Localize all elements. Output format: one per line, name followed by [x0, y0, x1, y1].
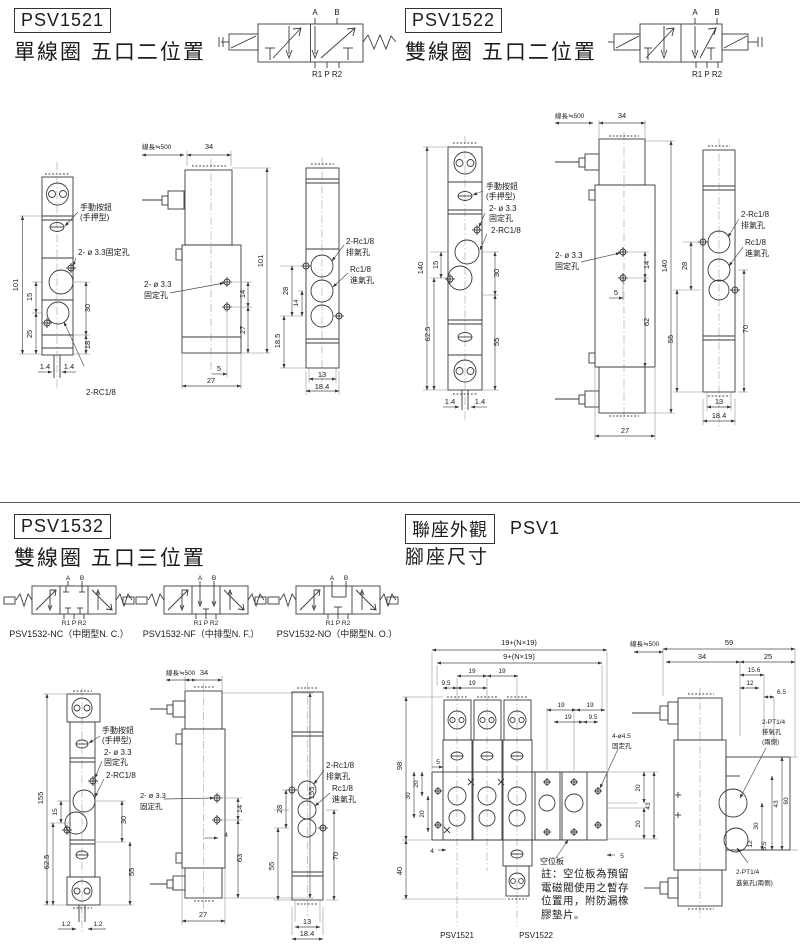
ports-bottom-label: R1 P R2: [194, 620, 219, 627]
pilot-actuator-right-icon: [722, 34, 762, 50]
exhaust-port-label: 2-Rc1/8: [326, 761, 355, 770]
valve-datasheet-page: PSV1521 單線圈 五口二位置 PSV1522 雙線圈 五口二位置 A B …: [0, 0, 800, 949]
psv1532-no-symbol: A B R1 P R2: [268, 576, 398, 626]
port-b-label: B: [212, 575, 216, 582]
dim-34: 34: [698, 652, 706, 661]
psv1521-back-view: 28 14 18.5 13 18.4 2-Rc1/8 排氣孔 Rc1/8 進氣孔: [276, 151, 402, 401]
dim-9-5: 9.5: [588, 714, 597, 721]
dim-14: 14: [293, 299, 300, 307]
dim-20: 20: [419, 810, 426, 818]
dim-19: 19: [557, 702, 565, 709]
dim-62-5: 62.5: [42, 855, 51, 870]
dim-1-4-right: 1.4: [64, 362, 74, 371]
dim-14: 14: [642, 261, 651, 269]
manual-button-label: 手動按鈕: [102, 725, 134, 735]
dim-43: 43: [773, 800, 780, 808]
dim-140: 140: [660, 260, 669, 273]
port-a-label: A: [66, 575, 71, 582]
dim-60: 60: [783, 797, 790, 805]
dim-1-4-right: 1.4: [475, 397, 485, 406]
dim-101: 101: [11, 279, 20, 292]
dim-12b: 12: [747, 840, 754, 848]
dim-1-2-right: 1.2: [93, 921, 102, 928]
exhaust-port-label: 2-Rc1/8: [346, 237, 375, 246]
dim-27-bottom: 27: [207, 376, 215, 385]
dim-40: 40: [395, 867, 404, 875]
ports-bottom-label: R1 P R2: [62, 620, 87, 627]
psv1532-nf-caption: PSV1532-NF（中排型N. F.）: [132, 627, 270, 640]
centerlines: [457, 693, 517, 926]
dim-28: 28: [680, 262, 689, 270]
dim-1-4-left: 1.4: [40, 362, 50, 371]
exhaust-port-label3: (兩側): [762, 738, 779, 746]
valve-symbol-body: [640, 18, 722, 68]
valve-unit-1: [443, 697, 472, 840]
dim-101: 101: [256, 255, 265, 268]
dim-25: 25: [764, 652, 772, 661]
valve-body: [555, 136, 655, 416]
extension-lines: [663, 649, 798, 850]
dim-13: 13: [303, 917, 311, 926]
valve1-model-label: PSV1521: [440, 931, 474, 940]
manifold-subtitle: 腳座尺寸: [405, 542, 489, 569]
dim-15: 15: [52, 808, 59, 816]
dim-63: 63: [235, 854, 244, 862]
exhaust-port-label: 2-PT1/4: [762, 719, 786, 726]
psv1522-model-box: PSV1522: [405, 8, 502, 33]
dim-4: 4: [430, 848, 434, 855]
dim-8-5: 8.5: [761, 841, 768, 850]
psv1532-back-view: 28 55 70 13 18.4 2-Rc1/8 排氣孔 Rc1/8 進氣孔: [268, 676, 400, 949]
psv1522-front-view: 140 15 62.5 30 55 1.4 1.4 手動按鈕 (手押型) 2- …: [413, 110, 533, 455]
psv1522-side-view: 線長≒500 34 140 14 5 62 27 2- ø 3.3 固定孔: [553, 106, 685, 454]
exhaust-port-label2: 排氣孔: [741, 220, 765, 230]
psv1532-nf-symbol: A B R1 P R2: [136, 576, 266, 626]
psv1532-no-caption: PSV1532-NO（中開型N. O.）: [264, 627, 410, 640]
wire-length-label: 線長≒500: [166, 668, 196, 677]
ports-bottom-label: R1 P R2: [312, 70, 343, 79]
valve-body: [292, 688, 323, 904]
exhaust-port-label2: 排氣孔: [326, 771, 350, 781]
dim-18-4: 18.4: [712, 411, 727, 420]
manifold-model: PSV1: [510, 518, 560, 539]
base-fixing-label: 4-ø4.5: [612, 733, 631, 740]
valve-unit-3: [503, 697, 532, 899]
psv1532-nc-caption: PSV1532-NC（中閉型N. C.）: [0, 627, 138, 640]
dim-15: 15: [431, 261, 440, 269]
dim-18-4: 18.4: [300, 929, 315, 938]
intake-port-label: Rc1/8: [350, 265, 371, 274]
valve-unit-2: [473, 697, 502, 840]
fixing-hole-label: 2- ø 3.3: [140, 791, 166, 800]
valve-body: [42, 174, 73, 378]
extension-lines: [402, 652, 658, 899]
fixing-hole-marks: [42, 263, 76, 328]
intake-port-label: 2-PT1/4: [736, 869, 760, 876]
manual-button-label: 手動按鈕: [486, 181, 518, 191]
fixing-hole-label: 2- ø 3.3: [144, 280, 172, 289]
valve-symbol-body: [258, 18, 363, 68]
manifold-base: [432, 772, 607, 840]
dim-55: 55: [666, 335, 675, 343]
dim-15-6: 15.6: [748, 667, 761, 674]
dim-30: 30: [753, 822, 760, 830]
dim-30: 30: [119, 816, 128, 824]
dim-20: 20: [413, 780, 420, 788]
psv1521-side-view: 線長≒500 34 101 14 27 5 27 2- ø 3.3 固定孔: [140, 133, 285, 398]
exhaust-port-label2: 排氣孔: [762, 727, 782, 736]
port-b-label: B: [714, 8, 719, 17]
dim-1-4-left: 1.4: [445, 397, 455, 406]
manifold-side-view: 線長≒500 59 34 25 15.6 12 6.5 2-PT1/4 排氣孔 …: [630, 636, 800, 949]
dim-14: 14: [238, 290, 247, 298]
spring-icon: [4, 594, 134, 606]
spring-icon: [363, 35, 396, 49]
psv1521-model: PSV1521: [21, 10, 104, 30]
psv1521-model-box: PSV1521: [14, 8, 111, 33]
fixing-hole-label2: 固定孔: [489, 213, 513, 223]
dim-19: 19: [468, 680, 476, 687]
dim-18: 18: [83, 341, 92, 349]
dim-19-n19: 19+(N×19): [501, 638, 537, 647]
psv1532-model: PSV1532: [21, 516, 104, 536]
dim-15: 15: [25, 293, 34, 301]
dim-12: 12: [746, 680, 754, 687]
psv1522-subtitle: 雙線圈 五口二位置: [405, 36, 597, 66]
pilot-actuator-left-icon: [608, 34, 640, 50]
wire-length-label: 線長≒500: [142, 142, 172, 151]
valve2-model-label: PSV1522: [519, 931, 553, 940]
dim-1-2-left: 1.2: [61, 921, 70, 928]
dimension-lines: [278, 770, 334, 939]
port-a-label: A: [198, 575, 203, 582]
manual-button-label: 手動按鈕: [80, 202, 112, 212]
base-fixing-label2: 固定孔: [612, 741, 632, 750]
dimension-lines: [142, 155, 267, 386]
dim-155: 155: [36, 792, 45, 805]
valve-body: [142, 166, 241, 353]
fixing-hole-label: 2- ø 3.3: [489, 204, 517, 213]
dim-70: 70: [741, 325, 750, 333]
dim-62: 62: [642, 318, 651, 326]
dim-9-5: 9.5: [441, 680, 450, 687]
pilot-actuator-icon: [219, 34, 258, 50]
port-a-label: A: [330, 575, 335, 582]
dim-27-bottom: 27: [621, 426, 629, 435]
section-divider: [0, 502, 800, 503]
dim-30: 30: [83, 304, 92, 312]
dim-55: 55: [127, 868, 136, 876]
wire-length-label: 線長≒500: [630, 639, 660, 648]
psv1522-model: PSV1522: [412, 10, 495, 30]
manual-button-label2: (手押型): [80, 212, 110, 222]
dim-34: 34: [618, 111, 626, 120]
fixing-hole-marks: [618, 247, 628, 283]
manifold-title-box: 聯座外觀: [405, 514, 495, 544]
fixing-hole-label2: 固定孔: [140, 801, 163, 811]
fixing-hole-label: 2- ø 3.3固定孔: [78, 247, 130, 257]
dim-55: 55: [267, 862, 276, 870]
psv1522-back-view: 28 55 70 13 18.4 2-Rc1/8 排氣孔 Rc1/8 進氣孔: [670, 111, 800, 459]
psv1532-model-box: PSV1532: [14, 514, 111, 539]
psv1521-symbol: A B R1 P R2: [213, 4, 400, 82]
psv1532-nc-symbol: A B R1 P R2: [4, 576, 134, 626]
extension-lines: [595, 120, 675, 440]
extension-lines: [280, 266, 339, 395]
intake-port-label: Rc1/8: [332, 784, 353, 793]
ports-bottom-label: R1 P R2: [326, 620, 351, 627]
dim-34: 34: [205, 142, 213, 151]
dim-19: 19: [468, 668, 476, 675]
fixing-hole-marks: [445, 225, 482, 284]
dim-30: 30: [492, 269, 501, 277]
port-a-label: A: [312, 8, 318, 17]
dim-70: 70: [331, 852, 340, 860]
dim-6-5: 6.5: [777, 689, 786, 696]
port-b-label: B: [80, 575, 84, 582]
fixing-hole-label2: 固定孔: [104, 757, 128, 767]
dim-30: 30: [405, 792, 412, 800]
psv1521-front-view: 101 15 25 30 18 1.4 1.4 手動按鈕 (手押型) 2- ø …: [8, 150, 143, 412]
dim-5: 5: [436, 759, 440, 766]
dim-5b: 5: [620, 853, 624, 860]
fixing-hole-label: 2- ø 3.3: [104, 748, 132, 757]
port-b-label: B: [334, 8, 339, 17]
dim-4: 4: [224, 832, 228, 839]
dim-19: 19: [564, 714, 572, 721]
dim-13: 13: [715, 397, 723, 406]
dim-13: 13: [318, 370, 326, 379]
fixing-hole-marks: [301, 261, 344, 321]
blank-plate-1: [535, 772, 560, 840]
dim-55: 55: [492, 338, 501, 346]
intake-port-label2: 進氣孔: [745, 248, 769, 258]
ports-bottom-label: R1 P R2: [692, 70, 723, 79]
psv1522-symbol: A B R1 P R2: [608, 4, 800, 82]
fixing-hole-marks: [62, 776, 98, 835]
dim-25: 25: [25, 330, 34, 338]
body-hole-marks: [675, 792, 681, 818]
rc-port-label: 2-RC1/8: [86, 388, 116, 397]
valve-symbol-body: [164, 581, 248, 619]
dim-9-n19: 9+(N×19): [503, 652, 535, 661]
dimension-lines: [284, 245, 348, 391]
blank-plate-label: 空位板: [540, 856, 564, 866]
fixing-hole-label2: 固定孔: [144, 290, 168, 300]
dim-28: 28: [281, 287, 290, 295]
valve-symbol-body: [32, 581, 116, 619]
wire-length-label: 線長≒500: [555, 111, 585, 120]
port-a-label: A: [692, 8, 698, 17]
dim-62-5: 62.5: [423, 327, 432, 342]
manual-button-label2: (手押型): [486, 191, 516, 201]
dim-5: 5: [614, 288, 618, 297]
valve-body: [632, 694, 726, 909]
dim-140: 140: [416, 262, 425, 275]
valve-symbol-body: [296, 581, 380, 619]
intake-port-label2: 進氣孔: [350, 275, 374, 285]
exhaust-port-label2: 排氣孔: [346, 247, 370, 257]
blank-plate-2: [562, 772, 587, 840]
valve-body: [65, 691, 100, 922]
dim-19: 19: [586, 702, 594, 709]
dim-18-4: 18.4: [315, 382, 330, 391]
dim-34: 34: [200, 668, 208, 677]
rc-port-label: 2-RC1/8: [106, 771, 136, 780]
intake-port-label: Rc1/8: [745, 238, 766, 247]
dim-28: 28: [275, 805, 284, 813]
dim-27: 27: [238, 326, 247, 334]
port-b-label: B: [344, 575, 348, 582]
dim-18-5: 18.5: [273, 334, 282, 349]
dimension-lines: [555, 123, 671, 436]
fixing-hole-label2: 固定孔: [555, 261, 579, 271]
fixing-hole-label: 2- ø 3.3: [555, 251, 583, 260]
dimension-lines: [634, 649, 795, 863]
dim-5: 5: [217, 364, 221, 373]
spring-icon: [268, 594, 398, 606]
intake-port-label2: 進氣孔: [332, 794, 356, 804]
intake-port-label2: 進氣孔(兩側): [736, 878, 773, 887]
manifold-title: 聯座外觀: [412, 520, 488, 540]
dim-59: 59: [725, 638, 733, 647]
dim-19: 19: [498, 668, 506, 675]
exhaust-port-label: 2-Rc1/8: [741, 210, 770, 219]
dim-14: 14: [235, 805, 244, 813]
dim-27-bottom: 27: [199, 910, 207, 919]
dim-98: 98: [395, 762, 404, 770]
rc-port-label: 2-RC1/8: [491, 226, 521, 235]
psv1521-subtitle: 單線圈 五口二位置: [14, 36, 206, 66]
psv1532-subtitle: 雙線圈 五口三位置: [14, 542, 206, 572]
manual-button-label2: (手押型): [102, 735, 132, 745]
